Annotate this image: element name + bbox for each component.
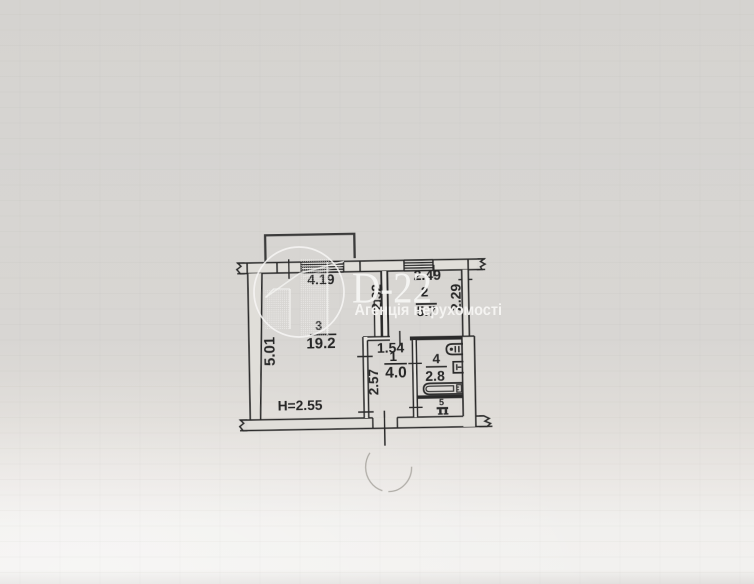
svg-text:19.2: 19.2	[306, 335, 335, 353]
svg-text:5.01: 5.01	[261, 337, 279, 366]
svg-text:Агенція нерухомості: Агенція нерухомості	[355, 302, 503, 319]
svg-text:2.57: 2.57	[366, 369, 381, 396]
svg-text:H=2.55: H=2.55	[277, 398, 322, 414]
svg-text:4: 4	[432, 351, 440, 366]
svg-text:5: 5	[439, 397, 444, 407]
svg-text:4.0: 4.0	[385, 364, 407, 381]
svg-text:1.54: 1.54	[377, 339, 405, 355]
svg-text:2.8: 2.8	[425, 368, 445, 384]
